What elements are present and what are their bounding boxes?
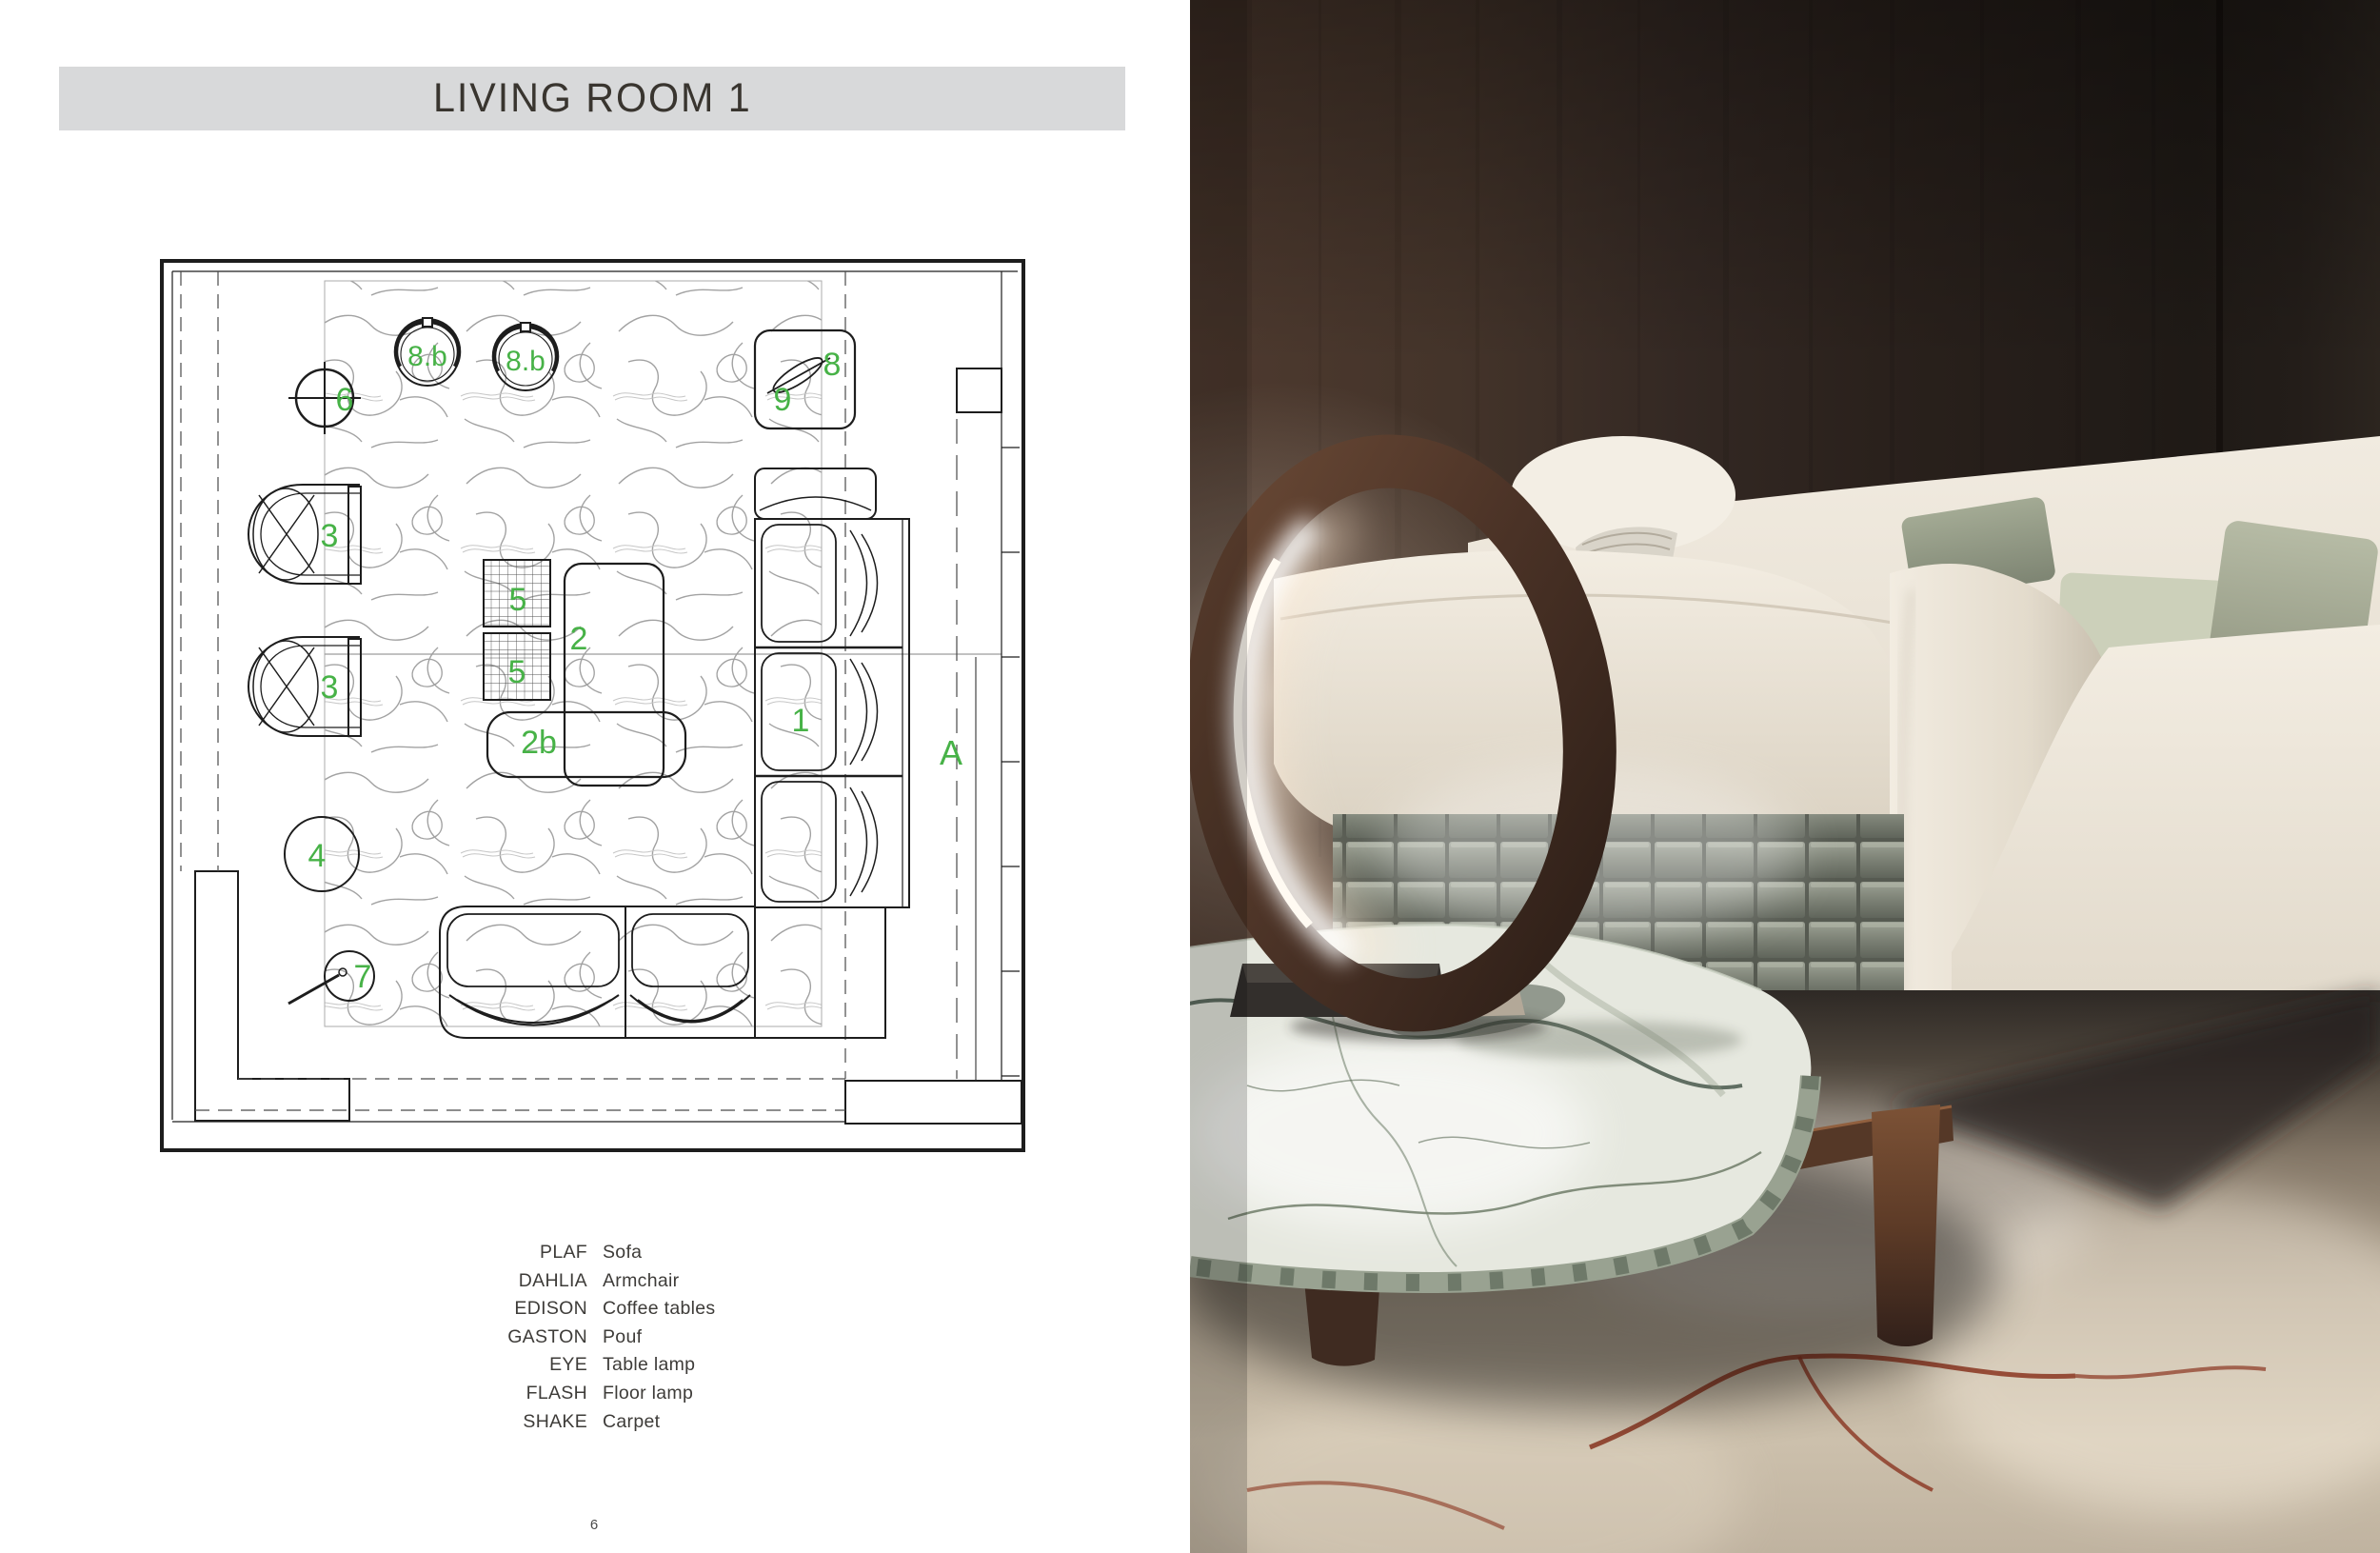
label-armchair-top: 3: [321, 518, 339, 554]
legend-name: SHAKE: [286, 1408, 587, 1437]
legend-name: EYE: [286, 1351, 587, 1380]
legend-row: SHAKECarpet: [286, 1408, 876, 1437]
legend-row: GASTONPouf: [286, 1324, 876, 1352]
label-coffee-tall: 2: [570, 621, 588, 657]
page-number: 6: [575, 1517, 613, 1533]
label-armchair-bottom: 3: [321, 669, 339, 706]
room-photo: [1190, 0, 2380, 1553]
legend-type: Armchair: [603, 1267, 679, 1296]
legend-name: PLAF: [286, 1239, 587, 1267]
legend: PLAFSofa DAHLIAArmchair EDISONCoffee tab…: [286, 1239, 876, 1436]
table-leg-right: [1872, 1105, 1940, 1346]
label-coffee-low: 2b: [521, 725, 557, 761]
legend-type: Floor lamp: [603, 1380, 693, 1408]
label-leaf: 9: [774, 382, 792, 418]
legend-name: DAHLIA: [286, 1267, 587, 1296]
label-lamp-table: 6: [336, 382, 354, 418]
legend-type: Coffee tables: [603, 1295, 715, 1324]
label-section: A: [940, 733, 962, 772]
label-side-table: 8: [823, 347, 842, 383]
left-page: LIVING ROOM 1: [0, 0, 1190, 1553]
legend-row: PLAFSofa: [286, 1239, 876, 1267]
legend-name: GASTON: [286, 1324, 587, 1352]
label-grid-bottom: 5: [508, 654, 526, 690]
label-pendant-right: 8.b: [506, 346, 545, 377]
legend-type: Sofa: [603, 1239, 642, 1267]
label-floor-lamp: 7: [354, 959, 372, 995]
legend-row: FLASHFloor lamp: [286, 1380, 876, 1408]
label-pouf: 4: [308, 838, 327, 874]
catalog-spread: LIVING ROOM 1: [0, 0, 2380, 1553]
legend-type: Carpet: [603, 1408, 660, 1437]
legend-type: Table lamp: [603, 1351, 695, 1380]
legend-row: EDISONCoffee tables: [286, 1295, 876, 1324]
legend-row: EYETable lamp: [286, 1351, 876, 1380]
label-sofa: 1: [792, 703, 810, 739]
legend-row: DAHLIAArmchair: [286, 1267, 876, 1296]
label-grid-top: 5: [509, 582, 527, 618]
label-pendant-left: 8.b: [407, 341, 447, 372]
legend-name: EDISON: [286, 1295, 587, 1324]
legend-name: FLASH: [286, 1380, 587, 1408]
legend-type: Pouf: [603, 1324, 642, 1352]
window-mullion-ticks: [1002, 448, 1020, 1076]
